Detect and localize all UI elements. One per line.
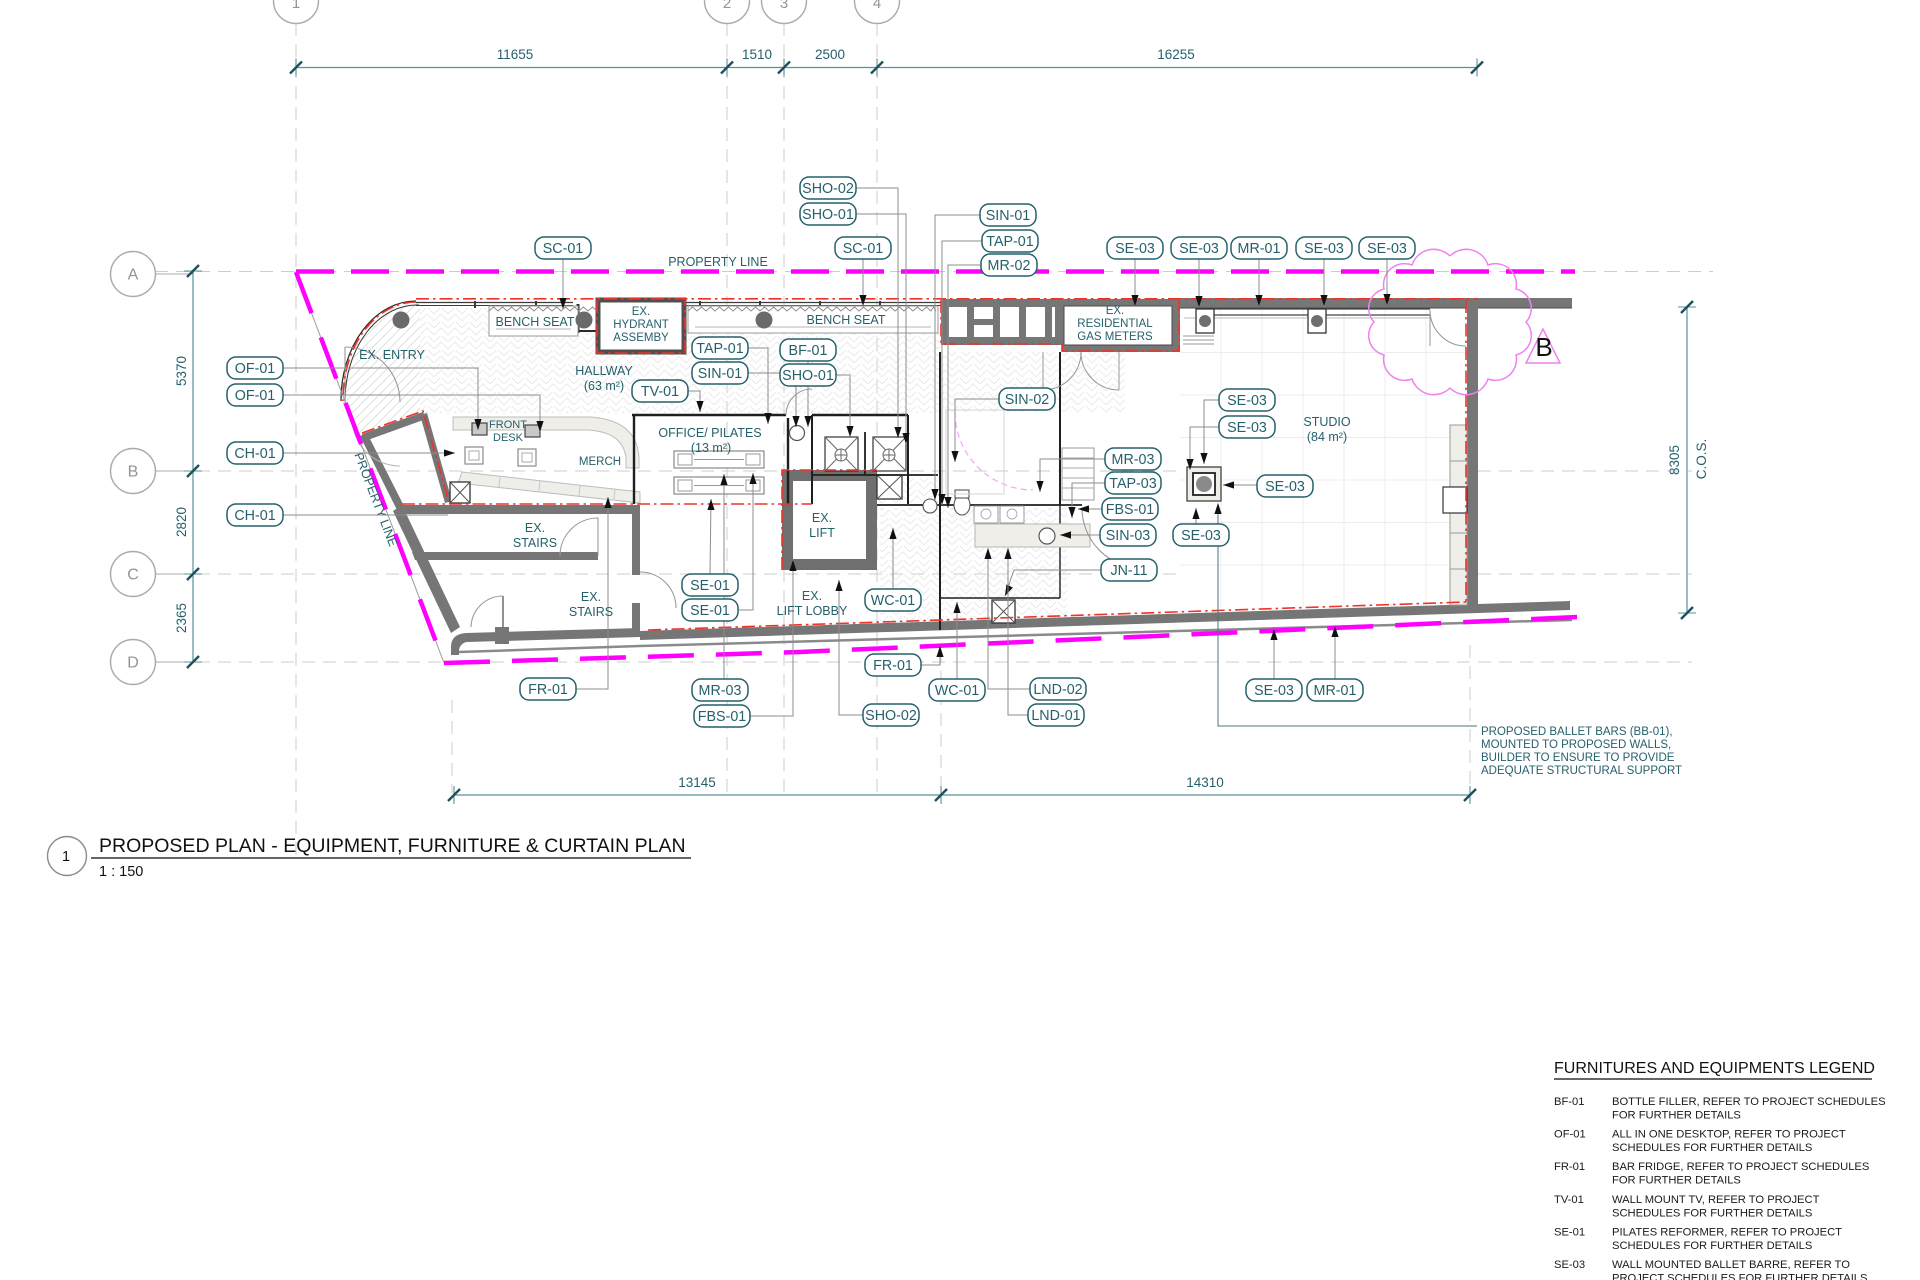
- svg-text:WC-01: WC-01: [935, 683, 980, 699]
- svg-text:BAR FRIDGE, REFER TO PROJECT S: BAR FRIDGE, REFER TO PROJECT SCHEDULES: [1612, 1161, 1869, 1173]
- svg-text:SIN-02: SIN-02: [1005, 392, 1050, 408]
- svg-text:SCHEDULES FOR FURTHER DETAILS: SCHEDULES FOR FURTHER DETAILS: [1612, 1207, 1812, 1219]
- svg-text:SHO-02: SHO-02: [865, 708, 917, 724]
- svg-text:2365: 2365: [174, 603, 189, 633]
- svg-text:EX.: EX.: [632, 306, 651, 318]
- svg-text:14310: 14310: [1186, 775, 1224, 790]
- svg-text:WALL MOUNTED BALLET BARRE, REF: WALL MOUNTED BALLET BARRE, REFER TO: [1612, 1259, 1850, 1271]
- svg-text:1510: 1510: [742, 47, 772, 62]
- svg-text:SE-03: SE-03: [1181, 528, 1221, 544]
- svg-text:STAIRS: STAIRS: [569, 605, 613, 619]
- svg-text:SE-03: SE-03: [1227, 420, 1267, 436]
- svg-text:SIN-03: SIN-03: [1106, 528, 1151, 544]
- svg-text:HALLWAY: HALLWAY: [575, 364, 633, 378]
- svg-text:LND-01: LND-01: [1031, 708, 1080, 724]
- svg-text:1: 1: [292, 0, 300, 12]
- svg-text:1: 1: [62, 849, 70, 865]
- svg-text:4: 4: [873, 0, 881, 12]
- svg-text:EX. ENTRY: EX. ENTRY: [359, 348, 425, 362]
- svg-text:STUDIO: STUDIO: [1303, 415, 1351, 429]
- svg-text:OF-01: OF-01: [235, 388, 276, 404]
- svg-text:EX.: EX.: [1106, 305, 1125, 317]
- svg-text:LND-02: LND-02: [1033, 682, 1082, 698]
- svg-text:STAIRS: STAIRS: [513, 536, 557, 550]
- svg-text:EX.: EX.: [802, 589, 822, 603]
- svg-text:2820: 2820: [174, 507, 189, 537]
- svg-text:SE-03: SE-03: [1254, 683, 1294, 699]
- svg-text:BF-01: BF-01: [1554, 1096, 1584, 1108]
- svg-text:D: D: [127, 655, 139, 672]
- svg-text:SE-03: SE-03: [1367, 241, 1407, 257]
- svg-text:BOTTLE FILLER, REFER TO PROJEC: BOTTLE FILLER, REFER TO PROJECT SCHEDULE…: [1612, 1096, 1886, 1108]
- svg-text:SIN-01: SIN-01: [986, 208, 1031, 224]
- svg-text:FBS-01: FBS-01: [698, 709, 747, 725]
- svg-text:SE-03: SE-03: [1227, 393, 1267, 409]
- svg-text:TV-01: TV-01: [1554, 1194, 1584, 1206]
- svg-text:GAS METERS: GAS METERS: [1077, 331, 1153, 343]
- svg-text:3: 3: [780, 0, 788, 12]
- svg-text:EX.: EX.: [581, 590, 601, 604]
- svg-text:A: A: [128, 267, 139, 284]
- svg-text:DESK: DESK: [493, 432, 524, 444]
- svg-text:SE-01: SE-01: [1554, 1226, 1585, 1238]
- svg-text:FBS-01: FBS-01: [1106, 502, 1155, 518]
- svg-text:MOUNTED TO PROPOSED WALLS,: MOUNTED TO PROPOSED WALLS,: [1481, 739, 1671, 751]
- svg-text:WALL MOUNT TV, REFER TO PROJEC: WALL MOUNT TV, REFER TO PROJECT: [1612, 1194, 1820, 1206]
- svg-text:HYDRANT: HYDRANT: [613, 319, 669, 331]
- svg-text:LIFT LOBBY: LIFT LOBBY: [777, 604, 848, 618]
- svg-text:MR-03: MR-03: [1112, 452, 1155, 468]
- svg-text:SC-01: SC-01: [543, 241, 584, 257]
- svg-text:B: B: [1535, 332, 1552, 362]
- svg-text:FR-01: FR-01: [873, 658, 913, 674]
- svg-text:SE-03: SE-03: [1304, 241, 1344, 257]
- svg-text:PROJECT SCHEDULES FOR FURTHER: PROJECT SCHEDULES FOR FURTHER DETAILS: [1612, 1273, 1868, 1280]
- svg-text:SE-01: SE-01: [690, 578, 730, 594]
- svg-text:SHO-02: SHO-02: [802, 181, 854, 197]
- svg-text:SC-01: SC-01: [843, 241, 884, 257]
- svg-text:C: C: [127, 567, 139, 584]
- svg-text:SE-03: SE-03: [1265, 479, 1305, 495]
- svg-text:SE-01: SE-01: [690, 603, 730, 619]
- svg-text:BF-01: BF-01: [789, 343, 828, 359]
- svg-text:TV-01: TV-01: [641, 384, 679, 400]
- svg-text:ADEQUATE STRUCTURAL SUPPORT: ADEQUATE STRUCTURAL SUPPORT: [1481, 765, 1682, 777]
- svg-text:FOR FURTHER DETAILS: FOR FURTHER DETAILS: [1612, 1175, 1741, 1187]
- svg-text:EX.: EX.: [525, 521, 545, 535]
- svg-text:FOR FURTHER DETAILS: FOR FURTHER DETAILS: [1612, 1110, 1741, 1122]
- svg-text:FRONT: FRONT: [489, 419, 527, 431]
- svg-text:13145: 13145: [678, 775, 716, 790]
- svg-text:CH-01: CH-01: [234, 508, 275, 524]
- svg-text:JN-11: JN-11: [1110, 563, 1147, 579]
- svg-text:PROPOSED BALLET BARS (BB-01),: PROPOSED BALLET BARS (BB-01),: [1481, 726, 1673, 738]
- svg-text:OF-01: OF-01: [235, 361, 276, 377]
- svg-text:MR-03: MR-03: [699, 683, 742, 699]
- svg-text:1 : 150: 1 : 150: [99, 864, 143, 880]
- svg-text:BENCH SEAT: BENCH SEAT: [807, 313, 886, 327]
- svg-text:FR-01: FR-01: [1554, 1161, 1585, 1173]
- svg-text:TAP-01: TAP-01: [696, 341, 743, 357]
- svg-text:16255: 16255: [1157, 47, 1195, 62]
- svg-text:FR-01: FR-01: [528, 682, 568, 698]
- svg-text:EX.: EX.: [812, 511, 832, 525]
- svg-text:2500: 2500: [815, 47, 845, 62]
- svg-text:WC-01: WC-01: [871, 593, 916, 609]
- svg-text:2: 2: [723, 0, 731, 12]
- svg-text:SE-03: SE-03: [1554, 1259, 1585, 1271]
- svg-text:ALL IN ONE DESKTOP, REFER TO P: ALL IN ONE DESKTOP, REFER TO PROJECT: [1612, 1129, 1846, 1141]
- svg-text:RESIDENTIAL: RESIDENTIAL: [1077, 318, 1153, 330]
- svg-text:SHO-01: SHO-01: [782, 368, 834, 384]
- svg-text:(84 m²): (84 m²): [1307, 430, 1347, 444]
- svg-text:TAP-01: TAP-01: [986, 234, 1033, 250]
- svg-text:(13 m²): (13 m²): [691, 441, 731, 455]
- svg-text:FURNITURES AND EQUIPMENTS LEGE: FURNITURES AND EQUIPMENTS LEGEND: [1554, 1060, 1875, 1077]
- svg-text:B: B: [128, 464, 139, 481]
- svg-text:8305: 8305: [1667, 445, 1682, 475]
- svg-text:SHO-01: SHO-01: [802, 207, 854, 223]
- svg-text:PROPOSED PLAN - EQUIPMENT, FUR: PROPOSED PLAN - EQUIPMENT, FURNITURE & C…: [99, 835, 686, 857]
- svg-text:SE-03: SE-03: [1115, 241, 1155, 257]
- svg-text:SCHEDULES FOR FURTHER DETAILS: SCHEDULES FOR FURTHER DETAILS: [1612, 1142, 1812, 1154]
- svg-text:SCHEDULES FOR FURTHER DETAILS: SCHEDULES FOR FURTHER DETAILS: [1612, 1240, 1812, 1252]
- svg-text:TAP-03: TAP-03: [1109, 476, 1156, 492]
- svg-text:CH-01: CH-01: [234, 446, 275, 462]
- svg-text:PROPERTY LINE: PROPERTY LINE: [668, 255, 768, 269]
- svg-text:(63 m²): (63 m²): [584, 379, 624, 393]
- svg-text:OFFICE/ PILATES: OFFICE/ PILATES: [658, 426, 761, 440]
- svg-text:SIN-01: SIN-01: [698, 366, 743, 382]
- svg-text:MR-02: MR-02: [988, 258, 1031, 274]
- svg-text:BUILDER TO ENSURE TO PROVIDE: BUILDER TO ENSURE TO PROVIDE: [1481, 752, 1675, 764]
- svg-text:MR-01: MR-01: [1314, 683, 1357, 699]
- svg-text:11655: 11655: [497, 47, 534, 62]
- svg-text:ASSEMBY: ASSEMBY: [613, 332, 669, 344]
- svg-text:5370: 5370: [174, 356, 189, 386]
- svg-text:MR-01: MR-01: [1238, 241, 1281, 257]
- svg-text:SE-03: SE-03: [1179, 241, 1219, 257]
- svg-text:PILATES REFORMER, REFER TO PRO: PILATES REFORMER, REFER TO PROJECT: [1612, 1226, 1842, 1238]
- svg-text:BENCH SEAT: BENCH SEAT: [496, 315, 575, 329]
- svg-text:OF-01: OF-01: [1554, 1129, 1586, 1141]
- svg-text:MERCH: MERCH: [579, 456, 621, 468]
- svg-text:LIFT: LIFT: [809, 526, 835, 540]
- svg-text:C.O.S.: C.O.S.: [1694, 439, 1709, 480]
